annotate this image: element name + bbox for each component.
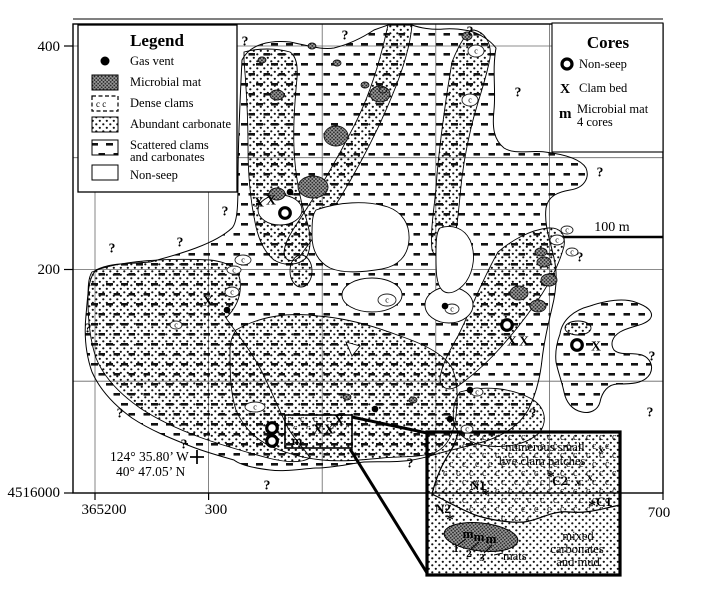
microbial-mat-patch	[324, 126, 348, 146]
site-map-svg: c c	[0, 0, 701, 587]
inset-clam-core-x-marker: x	[575, 477, 581, 489]
dense-clam-letter: c	[253, 403, 257, 412]
gas-vent-icon	[101, 57, 110, 66]
clam-bed-core-marker: X	[507, 334, 517, 349]
nonseep-core-marker	[572, 340, 583, 351]
uncertain-boundary-question-mark: ?	[577, 250, 584, 265]
microbial-mat-patch	[343, 394, 351, 400]
dense-clam-letter: c	[474, 47, 478, 56]
cores-item-mat-line1: Microbial mat	[577, 102, 649, 116]
uncertain-boundary-question-mark: ?	[649, 349, 656, 364]
nonseep-core-marker	[267, 436, 278, 447]
legend-item-non-seep: Non-seep	[130, 168, 178, 182]
cores-item-mat-line2: 4 cores	[577, 115, 613, 129]
inset-caption-line2: live clam patches	[499, 454, 586, 468]
dense-clam-letter: c	[450, 305, 454, 314]
inset-mat-number-3: 3	[479, 552, 485, 564]
scale-bar-label: 100 m	[594, 220, 630, 235]
inset-zone-line1: mixed	[562, 529, 594, 543]
uncertain-boundary-question-mark: ?	[242, 34, 249, 49]
gas-vent-marker	[442, 303, 449, 310]
dense-clam-letter: c	[241, 256, 245, 265]
uncertain-boundary-question-mark: ?	[467, 24, 474, 39]
cores-item-nonseep: Non-seep	[579, 57, 627, 71]
gas-vent-marker	[447, 416, 454, 423]
microbial-mat-patch	[530, 300, 546, 312]
cores-title: Cores	[587, 33, 630, 52]
mat-core-marker: m	[463, 526, 474, 541]
dense-clams-icon-letters: c c	[96, 99, 106, 109]
microbial-mat-patch	[333, 60, 341, 66]
mat-core-icon: m	[559, 106, 572, 122]
dense-clam-letter: c	[468, 96, 472, 105]
x-axis-label-300: 300	[205, 502, 228, 518]
clam-bed-core-marker: X	[519, 334, 529, 349]
clam-bed-core-marker: X	[313, 422, 323, 437]
inset-clam-core-x-marker: x	[598, 444, 604, 456]
inset-station-label-C2: C2	[552, 473, 568, 488]
inset-zone-line3: and mud	[556, 555, 600, 569]
legend-item-gas-vent: Gas vent	[130, 54, 175, 68]
uncertain-boundary-question-mark: ?	[407, 456, 414, 471]
microbial-mat-patch	[510, 286, 528, 300]
microbial-mat-icon	[92, 75, 118, 90]
cores-item-clam-bed: Clam bed	[579, 81, 628, 95]
y-axis-label-4516000: 4516000	[8, 485, 61, 501]
seep-site-map-figure: c c	[0, 0, 701, 587]
gas-vent-marker	[467, 387, 474, 394]
nonseep-core-marker	[502, 320, 513, 331]
legend-item-dense-clams: Dense clams	[130, 96, 194, 110]
y-axis-label-200: 200	[38, 262, 61, 278]
legend-item-microbial-mat: Microbial mat	[130, 75, 202, 89]
uncertain-boundary-question-mark: ?	[264, 478, 271, 493]
inset-station-label-N1: N1	[470, 478, 486, 493]
uncertain-boundary-question-mark: ?	[85, 321, 92, 336]
microbial-mat-patch	[308, 43, 316, 49]
dense-clam-letter: c	[385, 296, 389, 305]
nonseep-core-marker	[280, 208, 291, 219]
inset-mat-number-2: 2	[466, 548, 472, 560]
uncertain-boundary-question-mark: ?	[181, 437, 188, 452]
microbial-mat-patch	[298, 176, 328, 198]
inset-mats-label: mats	[503, 549, 527, 563]
legend-item-abundant-carbonate: Abundant carbonate	[130, 117, 231, 131]
dense-clam-letter: c	[230, 288, 234, 297]
microbial-mat-patch	[535, 248, 547, 256]
inset-caption-line1: numerous small	[505, 440, 585, 454]
scattered-clams-icon	[92, 140, 118, 155]
microbial-mat-patch	[258, 57, 266, 63]
longitude-label: 124° 35.80’ W	[110, 449, 189, 464]
clam-bed-core-marker: X	[324, 422, 334, 437]
gas-vent-marker	[224, 307, 231, 314]
uncertain-boundary-question-mark: ?	[647, 405, 654, 420]
inset-clam-core-x-marker: x	[587, 472, 593, 484]
clam-bed-core-icon: X	[560, 82, 570, 97]
abundant-carbonate-icon	[92, 117, 118, 132]
clam-bed-core-marker: X	[334, 413, 344, 428]
inset-station-label-N2: N2	[435, 501, 451, 516]
dense-clam-letter: c	[174, 321, 178, 330]
inset-core-star-marker: *	[588, 498, 596, 514]
microbial-mat-patch	[541, 274, 557, 286]
cores-legend-box: Cores Non-seep X Clam bed m Microbial ma…	[552, 23, 663, 152]
microbial-mat-patch	[361, 82, 369, 88]
microbial-mat-patch	[379, 87, 387, 93]
dense-clam-letter: c	[232, 266, 236, 275]
clam-bed-core-marker: X	[266, 193, 276, 208]
inset-zone-line2: carbonates	[550, 542, 604, 556]
uncertain-boundary-question-mark: ?	[342, 28, 349, 43]
x-axis-label-365200: 365200	[82, 502, 127, 518]
dense-clam-letter: c	[465, 425, 469, 434]
uncertain-boundary-question-mark: ?	[515, 85, 522, 100]
dense-clam-letter: c	[565, 226, 569, 235]
clam-bed-core-marker: X	[254, 195, 264, 210]
legend-item-scattered-line2: and carbonates	[130, 150, 205, 164]
uncertain-boundary-question-mark: ?	[597, 165, 604, 180]
nonseep-core-marker	[267, 423, 278, 434]
latitude-label: 40° 47.05’ N	[116, 464, 186, 479]
clam-bed-core-marker: X	[591, 339, 601, 354]
mat-core-marker: m	[486, 531, 497, 546]
inset-station-label-C1: C1	[596, 494, 612, 509]
dense-clam-letter: c	[475, 388, 479, 397]
microbial-mat-patch	[537, 257, 551, 267]
mat-core-marker: m	[474, 529, 485, 544]
microbial-mat-patch	[270, 90, 284, 100]
x-axis-label-700: 700	[648, 505, 671, 521]
uncertain-boundary-question-mark: ?	[222, 204, 229, 219]
y-axis-label-400: 400	[38, 39, 61, 55]
dense-clam-letter: c	[555, 236, 559, 245]
uncertain-boundary-question-mark: ?	[117, 406, 124, 421]
clam-bed-core-marker: X	[203, 294, 213, 309]
uncertain-boundary-question-mark: ?	[177, 235, 184, 250]
non-seep-icon	[92, 165, 118, 180]
uncertain-boundary-question-mark: ?	[109, 241, 116, 256]
dense-clam-letter: c	[570, 248, 574, 257]
legend-box: Legend Gas vent Microbial mat c c Dense …	[78, 25, 237, 192]
legend-title: Legend	[130, 31, 184, 50]
microbial-mat-patch	[409, 397, 417, 403]
inset-mat-number-1: 1	[453, 543, 459, 555]
gas-vent-marker	[372, 406, 379, 413]
nonseep-core-icon	[562, 59, 572, 69]
mat-core-marker: m	[292, 433, 303, 448]
uncertain-boundary-question-mark: ?	[530, 406, 537, 421]
gas-vent-marker	[287, 189, 294, 196]
